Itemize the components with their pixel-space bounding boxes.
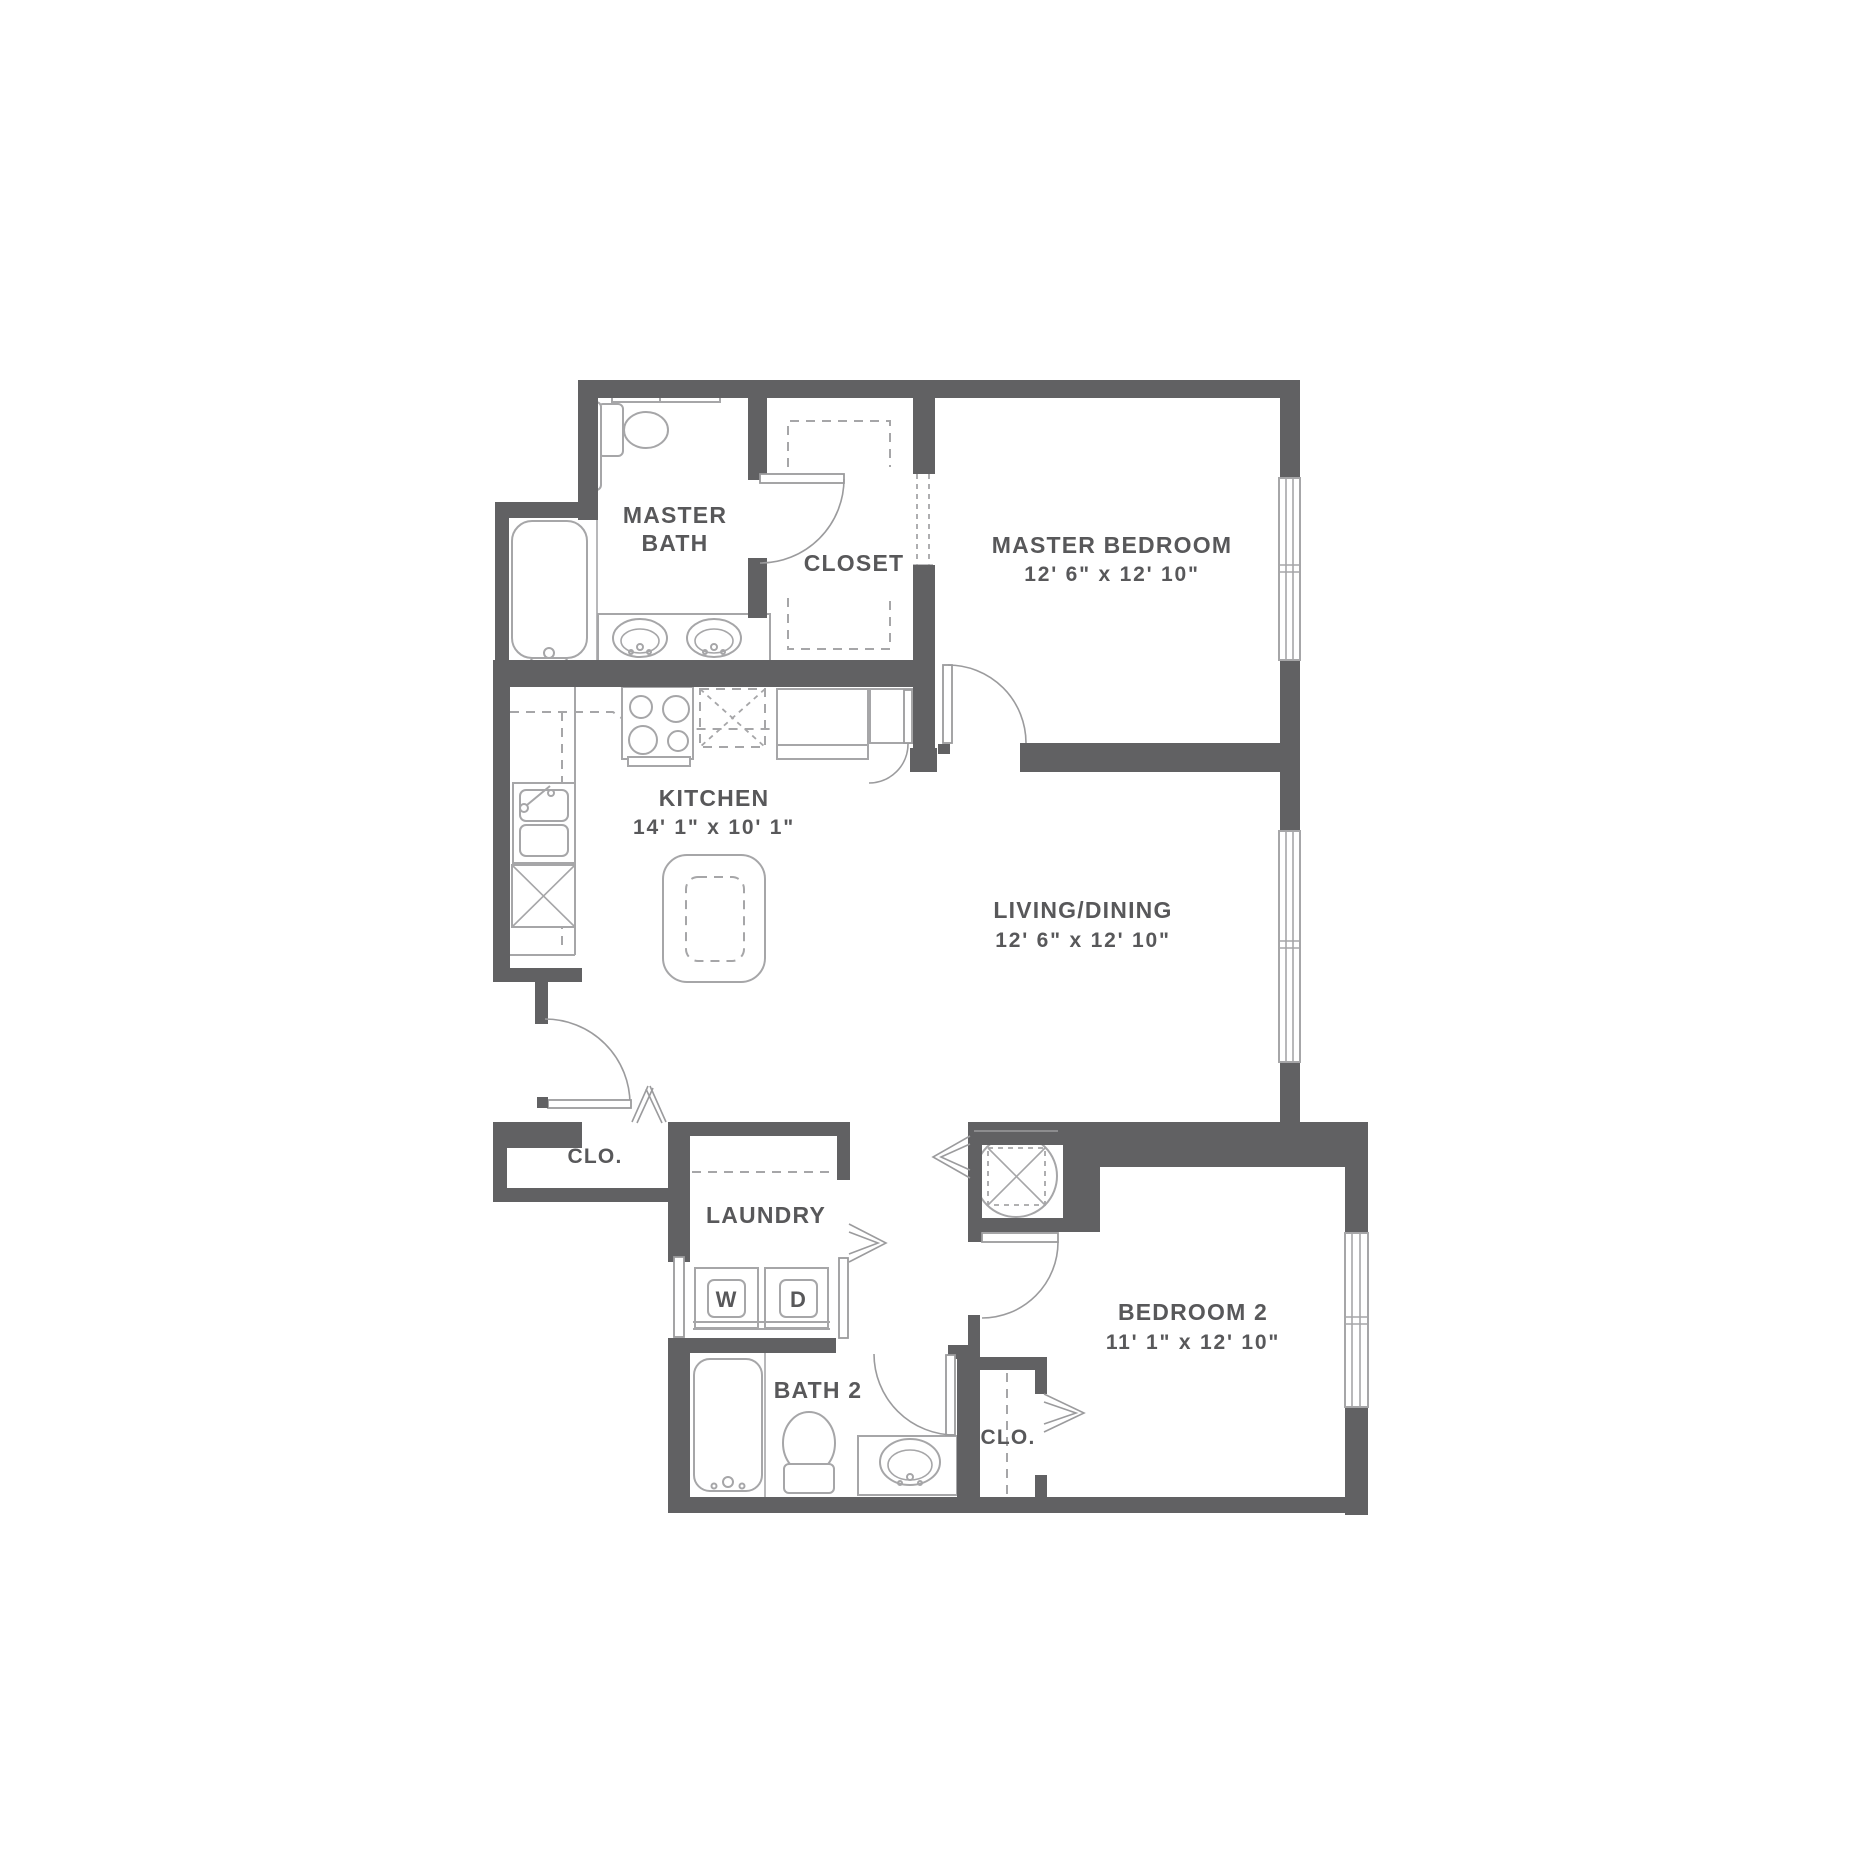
closet-shelving (788, 421, 933, 649)
floor-plan: MASTER BATH CLOSET MASTER BEDROOM 12' 6"… (0, 0, 1875, 1875)
bedroom2-door (968, 1231, 1058, 1318)
dishwasher (700, 689, 765, 747)
entry-closet-label: CLO. (568, 1145, 623, 1168)
laundry-label: LAUNDRY (706, 1202, 826, 1228)
entry-door (537, 1019, 666, 1123)
refrigerator (777, 689, 868, 759)
washer-label: W (716, 1287, 737, 1312)
master-bedroom-dims: 12' 6" x 12' 10" (1024, 563, 1199, 586)
bath2-toilet (783, 1412, 835, 1493)
master-bedroom-window (1279, 478, 1300, 660)
bath2-label: BATH 2 (774, 1377, 863, 1403)
kitchen-island (663, 855, 765, 982)
master-bedroom-door (938, 665, 1026, 754)
bedroom2-window (1345, 1233, 1368, 1407)
toilet (598, 404, 668, 456)
water-heater-closet (975, 1135, 1057, 1217)
base-cabinet (512, 865, 575, 927)
stove (622, 687, 693, 766)
bedroom2-closet-label: CLO. (981, 1426, 1036, 1449)
laundry-fixtures (692, 1172, 835, 1329)
living-dining-label: LIVING/DINING (993, 897, 1172, 923)
bedroom2-label: BEDROOM 2 (1118, 1299, 1268, 1325)
bedroom2-closet-door (1044, 1394, 1084, 1432)
kitchen-sink (513, 783, 575, 863)
pantry-cabinet (869, 689, 917, 783)
floor-plan-drawing: MASTER BATH CLOSET MASTER BEDROOM 12' 6"… (0, 0, 1875, 1875)
bath2-sink (858, 1436, 957, 1495)
master-bath-label-line2: BATH (642, 530, 709, 556)
bath2-door (874, 1354, 955, 1435)
windows (1279, 478, 1368, 1407)
double-vanity (598, 614, 770, 662)
master-bath-label-line1: MASTER (623, 502, 727, 528)
master-bedroom-label: MASTER BEDROOM (992, 532, 1232, 558)
bedroom2-dims: 11' 1" x 12' 10" (1106, 1331, 1280, 1354)
bath2-fixtures (694, 1352, 957, 1497)
master-bath-fixtures (512, 391, 770, 666)
closet-label: CLOSET (804, 550, 904, 576)
living-dining-dims: 12' 6" x 12' 10" (995, 929, 1170, 952)
master-tub (512, 518, 597, 666)
bath2-tub (694, 1359, 762, 1491)
dryer-label: D (790, 1287, 806, 1312)
living-window (1279, 831, 1300, 1062)
kitchen-label: KITCHEN (659, 785, 770, 811)
kitchen-dims: 14' 1" x 10' 1" (633, 816, 795, 839)
